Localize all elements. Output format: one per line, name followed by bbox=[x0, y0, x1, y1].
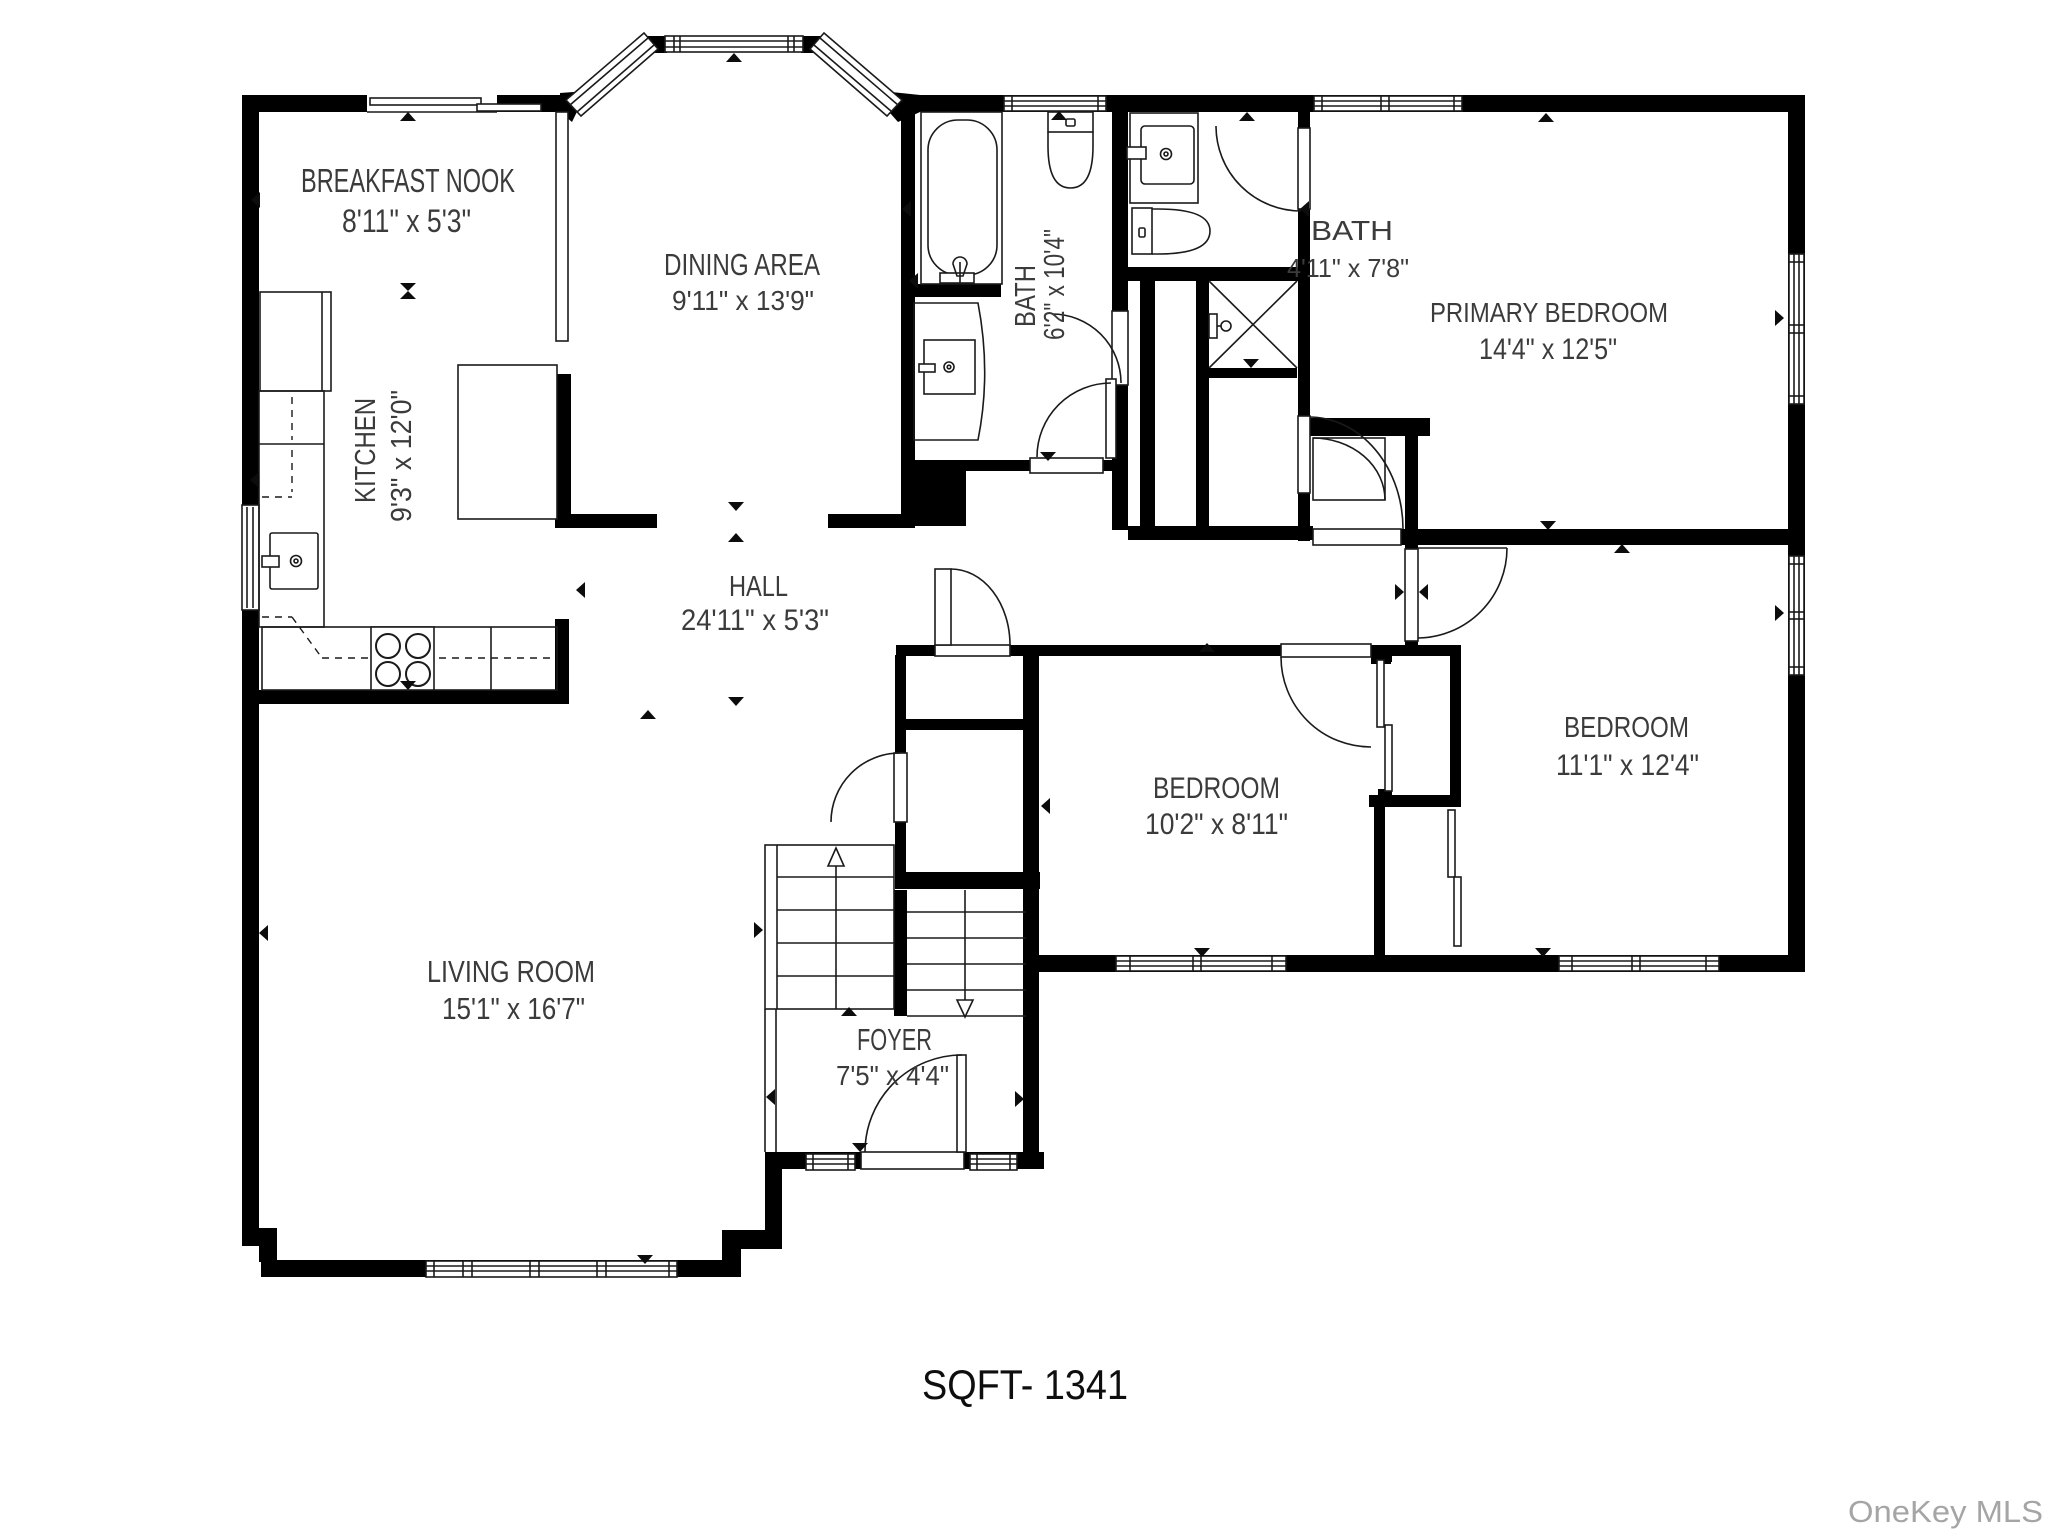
svg-text:9'3" x 12'0": 9'3" x 12'0" bbox=[386, 390, 418, 522]
svg-text:BATH: BATH bbox=[1311, 215, 1393, 246]
svg-text:8'11" x 5'3": 8'11" x 5'3" bbox=[342, 203, 471, 239]
svg-text:BEDROOM: BEDROOM bbox=[1153, 772, 1280, 805]
svg-text:6'2" x 10'4": 6'2" x 10'4" bbox=[1039, 229, 1071, 340]
svg-text:KITCHEN: KITCHEN bbox=[350, 398, 382, 503]
svg-text:DINING AREA: DINING AREA bbox=[664, 247, 820, 282]
svg-text:SQFT- 1341: SQFT- 1341 bbox=[922, 1361, 1128, 1408]
svg-text:9'11" x 13'9": 9'11" x 13'9" bbox=[672, 285, 814, 316]
svg-text:10'2" x 8'11": 10'2" x 8'11" bbox=[1145, 808, 1288, 841]
svg-text:11'1" x 12'4": 11'1" x 12'4" bbox=[1556, 749, 1699, 782]
svg-text:OneKey MLS: OneKey MLS bbox=[1848, 1494, 2043, 1529]
svg-text:14'4" x 12'5": 14'4" x 12'5" bbox=[1479, 333, 1617, 366]
svg-text:BREAKFAST NOOK: BREAKFAST NOOK bbox=[301, 162, 515, 199]
svg-text:PRIMARY BEDROOM: PRIMARY BEDROOM bbox=[1430, 297, 1668, 328]
svg-text:LIVING ROOM: LIVING ROOM bbox=[427, 954, 595, 989]
svg-text:7'5" x 4'4": 7'5" x 4'4" bbox=[836, 1060, 949, 1091]
svg-text:24'11" x 5'3": 24'11" x 5'3" bbox=[681, 604, 829, 637]
svg-text:HALL: HALL bbox=[729, 571, 788, 603]
svg-text:4'11" x 7'8": 4'11" x 7'8" bbox=[1287, 253, 1409, 283]
svg-text:15'1" x 16'7": 15'1" x 16'7" bbox=[442, 991, 585, 1026]
svg-text:BEDROOM: BEDROOM bbox=[1564, 712, 1689, 744]
svg-text:FOYER: FOYER bbox=[857, 1022, 932, 1057]
svg-text:BATH: BATH bbox=[1010, 265, 1042, 327]
